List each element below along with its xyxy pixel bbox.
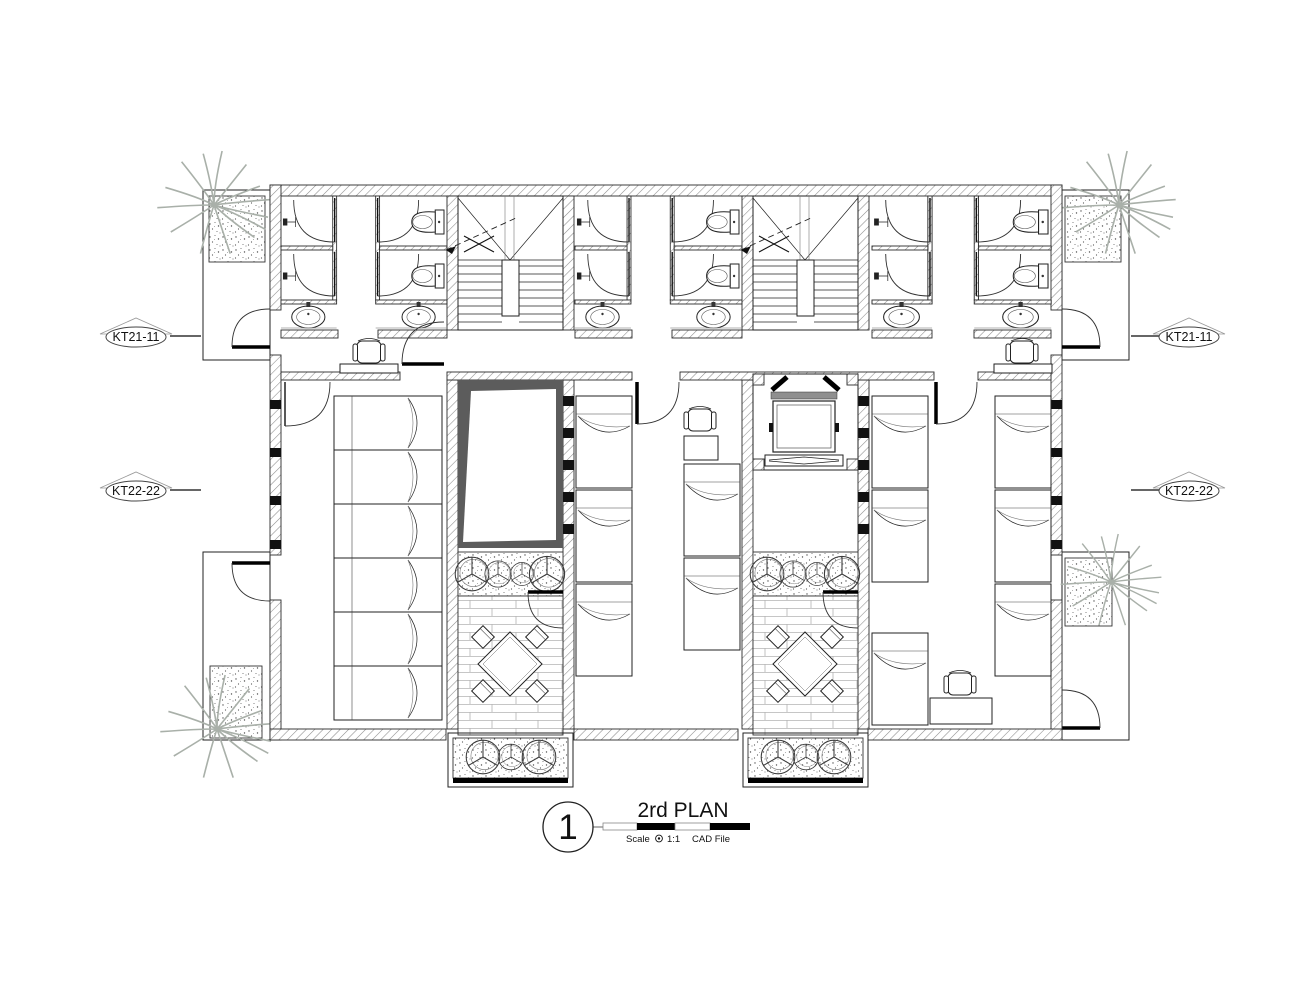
desk	[340, 364, 398, 373]
bed	[872, 396, 928, 488]
bed	[576, 490, 632, 582]
bed	[684, 464, 740, 556]
title-block: 1 2rd PLAN Scale 1:1 CAD File	[543, 799, 750, 852]
elevator	[753, 374, 858, 470]
bed	[334, 612, 442, 666]
section-marker-kt21-11-left: KT21-11	[100, 318, 201, 347]
room-dorm-left	[285, 382, 442, 720]
drawing-sheet: KT21-11 KT22-22 KT21-11 KT22-22 1 2rd PL…	[0, 0, 1308, 1000]
bed	[995, 490, 1051, 582]
bed	[995, 584, 1051, 676]
floor-plan-drawing: KT21-11 KT22-22 KT21-11 KT22-22 1 2rd PL…	[0, 0, 1308, 1000]
section-marker-label: KT21-11	[112, 330, 159, 344]
section-marker-label: KT22-22	[1165, 484, 1213, 498]
void-shadow	[458, 380, 563, 548]
bed	[334, 396, 442, 450]
chair	[684, 407, 716, 432]
bathroom-block-left	[281, 196, 447, 328]
section-marker-label: KT22-22	[112, 484, 160, 498]
desk	[684, 436, 718, 460]
balcony-bottom-left	[160, 552, 273, 778]
detail-number: 1	[558, 808, 577, 847]
plan-title: 2rd PLAN	[637, 799, 728, 822]
scale-label: Scale	[626, 834, 650, 845]
office-chair	[353, 339, 385, 364]
scale-bar	[603, 823, 750, 830]
bathroom-block-right	[872, 196, 1051, 328]
stair-core-right	[741, 196, 858, 330]
bed	[872, 633, 928, 725]
bed	[995, 396, 1051, 488]
balcony-top-right	[1062, 151, 1176, 360]
balcony-bottom-right	[1061, 534, 1162, 740]
stair-core-left	[446, 196, 563, 330]
office-chair	[1006, 339, 1038, 364]
bed	[334, 504, 442, 558]
desk	[994, 364, 1052, 373]
bed	[576, 584, 632, 676]
bed	[334, 450, 442, 504]
scale-symbol-icon	[656, 835, 663, 842]
room-dorm-middle	[576, 382, 740, 676]
chair	[944, 671, 976, 696]
desk	[930, 698, 992, 724]
bathroom-block-middle	[575, 196, 742, 328]
bed	[334, 666, 442, 720]
courtyard-patio-left	[448, 552, 573, 787]
bed	[576, 396, 632, 488]
section-marker-kt22-22-left: KT22-22	[100, 472, 201, 501]
bed	[872, 490, 928, 582]
section-marker-kt21-11-right: KT21-11	[1131, 318, 1225, 347]
section-marker-kt22-22-right: KT22-22	[1131, 472, 1225, 501]
balcony-top-left	[157, 151, 270, 360]
bed	[684, 558, 740, 650]
room-dorm-right	[872, 382, 1051, 725]
bed	[334, 558, 442, 612]
cad-file-label: CAD File	[692, 834, 730, 845]
courtyard-patio-right	[743, 552, 868, 787]
section-marker-label: KT21-11	[1165, 330, 1212, 344]
scale-value: 1:1	[667, 834, 680, 845]
